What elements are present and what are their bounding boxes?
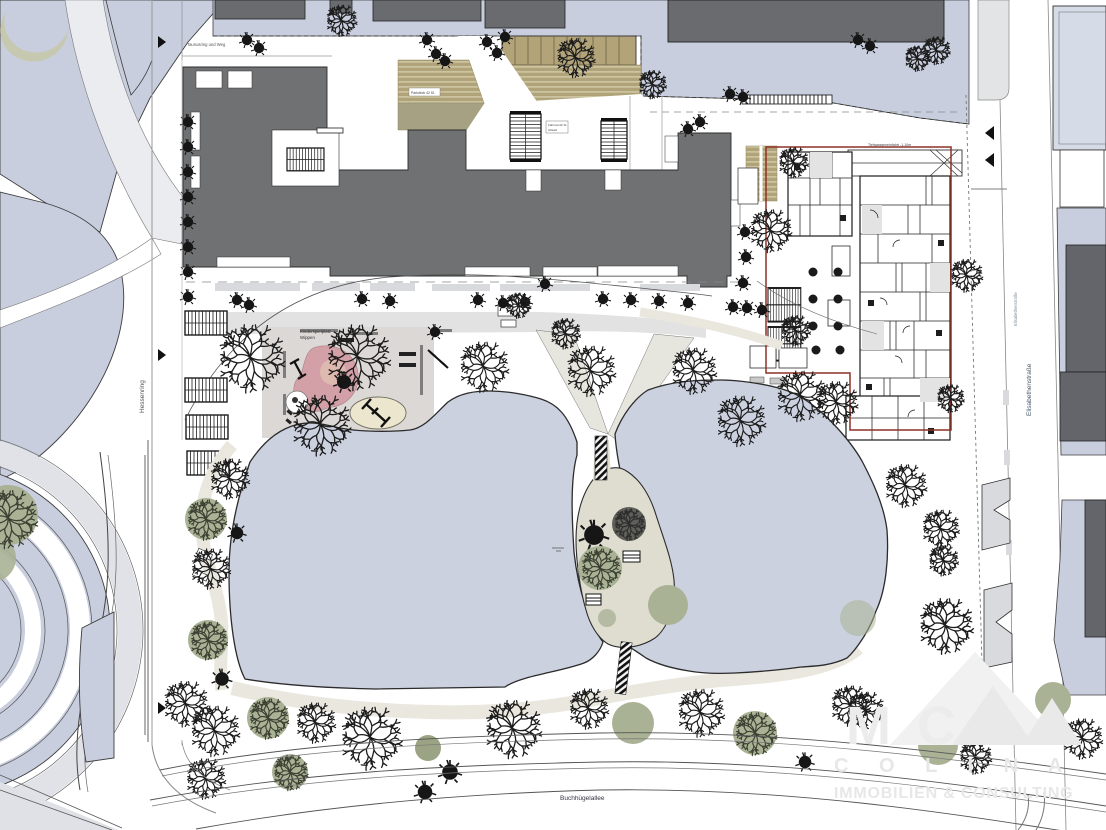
svg-text:IMMOBILIEN & CONSULTING: IMMOBILIEN & CONSULTING <box>834 785 1073 802</box>
svg-text:Elisabethenstraße: Elisabethenstraße <box>1026 363 1033 416</box>
svg-text:Taunusring und Weg: Taunusring und Weg <box>187 42 226 47</box>
svg-text:Buchhügelallee: Buchhügelallee <box>560 795 605 802</box>
svg-text:Hessenring: Hessenring <box>139 380 146 413</box>
svg-text:Abstell: Abstell <box>548 128 557 132</box>
svg-text:Fahrrad 22 St.: Fahrrad 22 St. <box>548 123 567 127</box>
svg-text:Elisabethenstraße: Elisabethenstraße <box>1013 292 1018 326</box>
svg-text:Kinderspielplatz: Kinderspielplatz <box>300 329 331 334</box>
svg-text:Wippen: Wippen <box>300 335 315 340</box>
svg-text:Parkdeck 42 St.: Parkdeck 42 St. <box>411 91 435 95</box>
svg-text:C O L I N A: C O L I N A <box>834 755 1075 777</box>
svg-text:MC: MC <box>846 696 982 756</box>
